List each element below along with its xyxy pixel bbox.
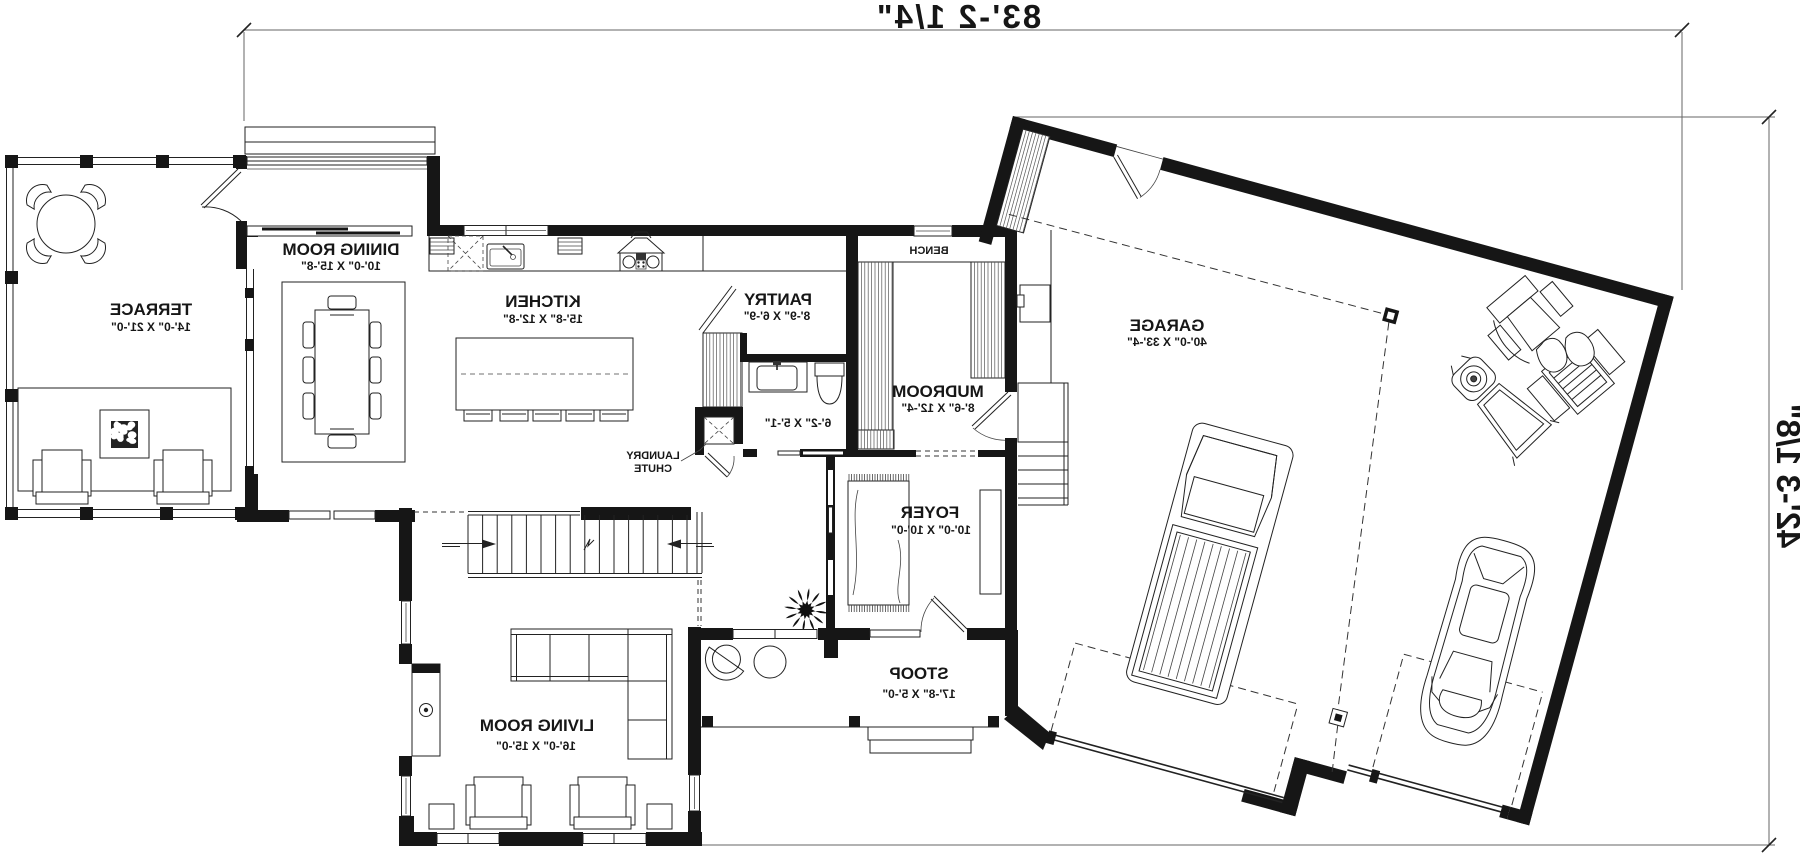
svg-text:6'-2" X 5'-1": 6'-2" X 5'-1"	[765, 416, 831, 430]
svg-text:40'-0" X 33'-4": 40'-0" X 33'-4"	[1127, 335, 1207, 349]
svg-text:DINING ROOM: DINING ROOM	[282, 240, 399, 259]
svg-text:MUDROOM: MUDROOM	[892, 382, 984, 401]
svg-text:TERRACE: TERRACE	[110, 300, 192, 319]
svg-text:8'-9" X 6'-9": 8'-9" X 6'-9"	[744, 309, 810, 323]
svg-text:KITCHEN: KITCHEN	[505, 292, 581, 311]
svg-text:PANTRY: PANTRY	[743, 290, 812, 309]
svg-text:LIVING ROOM: LIVING ROOM	[480, 716, 594, 735]
svg-text:14'-0" X 21'-0": 14'-0" X 21'-0"	[111, 320, 191, 334]
svg-text:FOYER: FOYER	[901, 503, 960, 522]
svg-text:8'-6" X 12'-4": 8'-6" X 12'-4"	[901, 401, 974, 415]
svg-text:17'-8" X 5'-0": 17'-8" X 5'-0"	[882, 687, 955, 701]
svg-text:GARAGE: GARAGE	[1130, 316, 1205, 335]
svg-text:16'-0" X 15'-0": 16'-0" X 15'-0"	[496, 739, 576, 753]
svg-text:LAUNDRY: LAUNDRY	[626, 450, 680, 462]
svg-text:42'-3 1/8": 42'-3 1/8"	[1770, 404, 1800, 549]
svg-text:BENCH: BENCH	[909, 245, 948, 257]
svg-text:83'-2 1/4": 83'-2 1/4"	[875, 0, 1042, 35]
svg-text:15'-8" X 12'-8": 15'-8" X 12'-8"	[503, 312, 583, 326]
svg-text:CHUTE: CHUTE	[634, 463, 672, 475]
svg-text:10'-0" X 15'-8": 10'-0" X 15'-8"	[301, 259, 381, 273]
svg-text:STOOP: STOOP	[889, 664, 948, 683]
svg-text:10'-0" X 10'-0": 10'-0" X 10'-0"	[891, 523, 971, 537]
